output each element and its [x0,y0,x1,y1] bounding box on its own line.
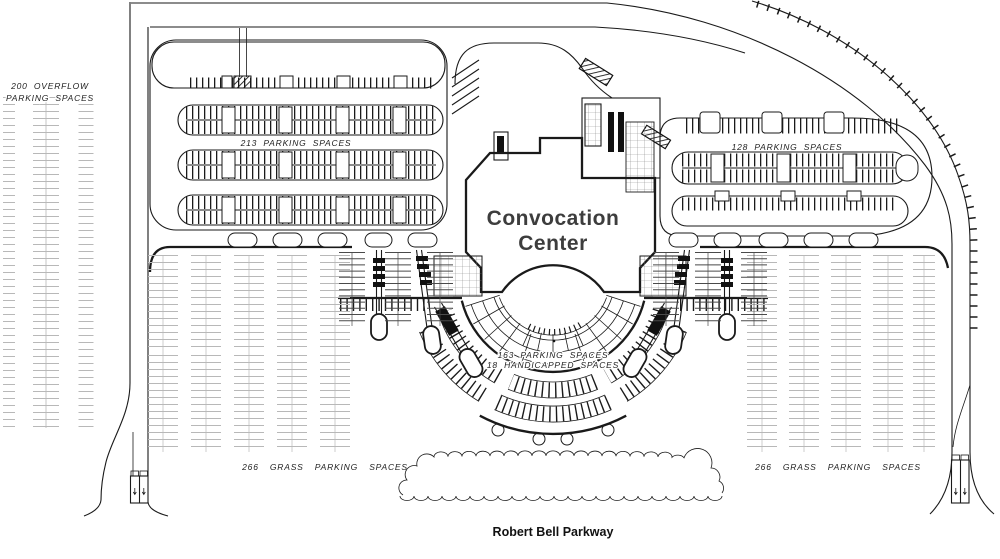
northwest-lot-label: 213 PARKING SPACES [240,138,352,148]
plaza-radial-grid [466,295,641,352]
site-plan: 200 OVERFLOW PARKING SPACES 213 PARKI [0,0,1000,559]
grass-parking-southwest: 266 GRASS PARKING SPACES [150,233,440,472]
grass-se-label: 266 GRASS PARKING SPACES [754,462,921,472]
overflow-label-line2: PARKING SPACES [6,93,94,103]
left-access-road [84,2,168,516]
gate-booth-left [131,471,149,503]
site-plan-drawing: 200 OVERFLOW PARKING SPACES 213 PARKI [0,0,1000,559]
fan-parking-area: 163 PARKING SPACES 18 HANDICAPPED SPACES [338,250,768,445]
hedge-outline [399,448,724,500]
grass-rows-sw [163,255,335,452]
fan-label-line1: 163 PARKING SPACES [498,350,609,360]
grass-rows-se [762,255,924,452]
overflow-label-line1: 200 OVERFLOW [10,81,89,91]
building-label-line2: Center [518,232,588,255]
northwest-parking-lot: 213 PARKING SPACES [150,28,447,230]
northeast-parking-lot: 128 PARKING SPACES [660,112,932,236]
crosswalk-hatch-north [579,58,612,85]
overflow-parking-area: 200 OVERFLOW PARKING SPACES [6,81,94,428]
grass-sw-label: 266 GRASS PARKING SPACES [241,462,408,472]
grass-parking-southeast: 266 GRASS PARKING SPACES [666,233,948,472]
fan-label-line2: 18 HANDICAPPED SPACES [487,360,619,370]
building-label-line1: Convocation [487,207,620,230]
parkway-label: Robert Bell Parkway [493,525,614,539]
gate-booth-right [952,455,970,503]
convocation-center-building: Convocation Center [434,43,686,296]
northeast-lot-label: 128 PARKING SPACES [732,142,843,152]
